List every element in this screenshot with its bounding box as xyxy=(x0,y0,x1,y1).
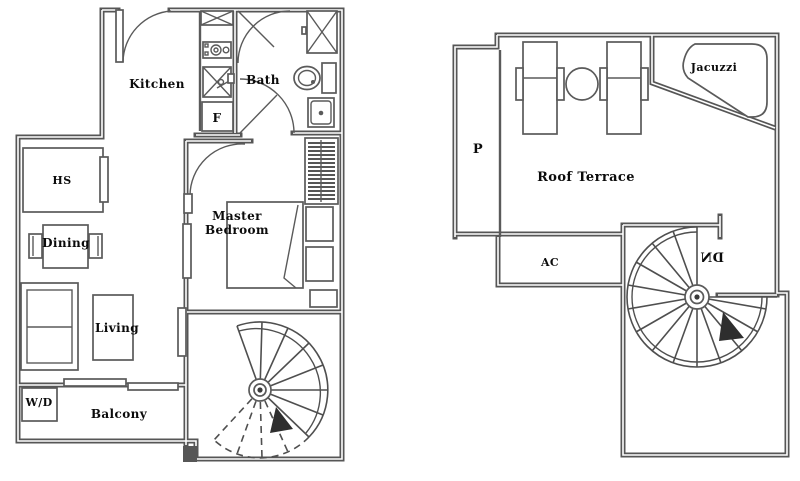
bath-door-top xyxy=(238,11,290,63)
shower-icon xyxy=(302,11,337,53)
room-label-dining: Dining xyxy=(42,236,90,250)
room-label-ac: AC xyxy=(540,256,559,269)
room-label-hs: HS xyxy=(52,174,71,187)
room-label-planter: P xyxy=(473,142,483,157)
room-label-kitchen: Kitchen xyxy=(129,77,185,91)
stove-icon xyxy=(203,42,231,58)
room-label-bedroom: Bedroom xyxy=(205,223,269,237)
room-label-jacuzzi: Jacuzzi xyxy=(690,61,738,74)
wardrobe-icon xyxy=(305,138,338,204)
room-label-roof-terrace: Roof Terrace xyxy=(537,170,635,185)
room-label-dn-mirrored: DN xyxy=(700,251,724,266)
bedroom-window xyxy=(183,224,191,278)
kitchen-cabinet-icon xyxy=(201,11,233,25)
room-label-fridge: F xyxy=(213,111,222,125)
kitchen-sink-icon xyxy=(203,67,234,97)
room-label-wd: W/D xyxy=(24,396,52,409)
balcony-sliding-door xyxy=(64,379,178,390)
living-window xyxy=(178,308,186,356)
room-label-balcony: Balcony xyxy=(91,407,148,421)
entry-door xyxy=(116,10,171,62)
dresser-icon xyxy=(306,247,333,281)
spiral-stair-unit xyxy=(214,322,328,458)
toilet-icon xyxy=(294,63,336,93)
spiral-stair-roof xyxy=(627,227,777,367)
lounger-right-icon xyxy=(600,42,648,134)
sofa-icon xyxy=(21,283,78,370)
roof-plan: P Roof Terrace Jacuzzi AC DN xyxy=(455,35,787,455)
bath-sink-icon xyxy=(308,98,334,127)
side-table-icon xyxy=(566,68,598,100)
bench-icon xyxy=(310,290,337,307)
room-label-living: Living xyxy=(95,321,139,335)
bath-entry-door xyxy=(240,79,294,133)
balcony-step-wall xyxy=(183,446,197,462)
room-label-bath: Bath xyxy=(246,73,280,87)
jacuzzi-tub-icon xyxy=(683,44,767,117)
floor-plan-image: P Roof Terrace Jacuzzi AC DN Kitchen Bat… xyxy=(0,0,800,481)
lounger-left-icon xyxy=(516,42,564,134)
nightstand-icon xyxy=(306,207,333,241)
floor-plan-svg: P Roof Terrace Jacuzzi AC DN Kitchen Bat… xyxy=(0,0,800,481)
room-label-master: Master xyxy=(212,209,262,223)
